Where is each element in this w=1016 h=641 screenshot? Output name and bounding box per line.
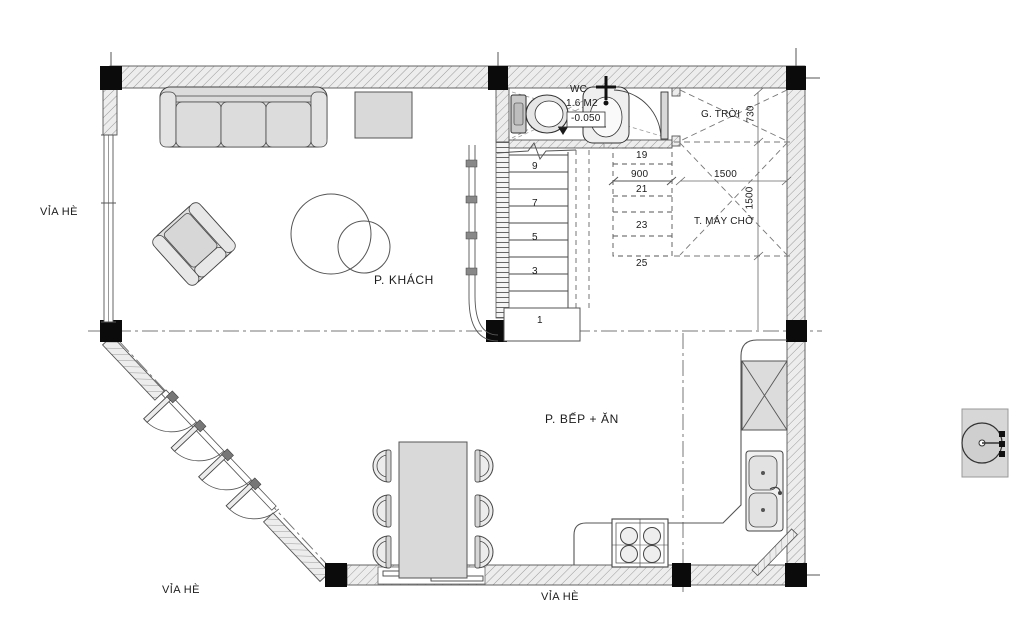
stair-tread-21: 21 [636,184,648,195]
stair-tread-19: 19 [636,150,648,161]
coffee-table-small [338,221,390,273]
stair-tread-1: 1 [537,315,543,326]
stair-tread-25: 25 [636,258,648,269]
stair-tread-23: 23 [636,220,648,231]
floor-plan-drawing [0,0,1016,641]
staircase [496,142,589,341]
side-table [355,92,412,138]
kitchen-sink-icon [746,451,783,531]
floor-plan: VỈA HÈ VỈA HÈ VỈA HÈ P. KHÁCH P. BẾP + Ă… [0,0,1016,641]
label-wc-area: 1.6 M2 [566,98,598,109]
folding-door-diagonal [144,390,279,519]
stair-tread-3: 3 [532,266,538,277]
label-skylight: G. TRỜI [701,109,740,120]
dim-1500-width: 1500 [714,169,737,180]
kitchen [574,340,797,576]
label-wc-level: -0.050 [571,113,601,124]
coffee-table-large [291,194,371,274]
washing-machine-icon [962,409,1008,477]
stove-icon [612,519,668,567]
wall-left-upper [103,88,117,135]
wall-diagonal-upper [103,336,165,400]
label-elevator-shaft: T. MÁY CHỜ [694,216,754,227]
wall-top [110,66,805,88]
stair-tread-9: 9 [532,161,538,172]
dim-730: 730 [746,105,757,122]
label-wc: WC [570,84,587,95]
label-sidewalk-left: VỈA HÈ [40,206,78,218]
shaft-dimension-lines [676,88,791,330]
label-living-room: P. KHÁCH [374,273,434,287]
label-kitchen-dining: P. BẾP + ĂN [545,412,619,426]
sofa [160,87,327,147]
wall-diagonal-lower [264,513,330,581]
dining-set [373,442,493,578]
window-left [101,135,116,322]
label-sidewalk-bottom-left: VỈA HÈ [162,584,200,596]
elevator-shaft-zone [674,143,790,256]
armchair [150,200,238,288]
dim-900: 900 [631,169,648,180]
dim-1500-depth: 1500 [745,186,756,209]
wall-wc-left [496,88,509,142]
fridge-space [742,361,787,430]
dining-table [399,442,467,578]
stair-tread-5: 5 [532,232,538,243]
stair-tread-7: 7 [532,198,538,209]
label-sidewalk-bottom: VỈA HÈ [541,591,579,603]
stair-side-wall [466,145,498,341]
